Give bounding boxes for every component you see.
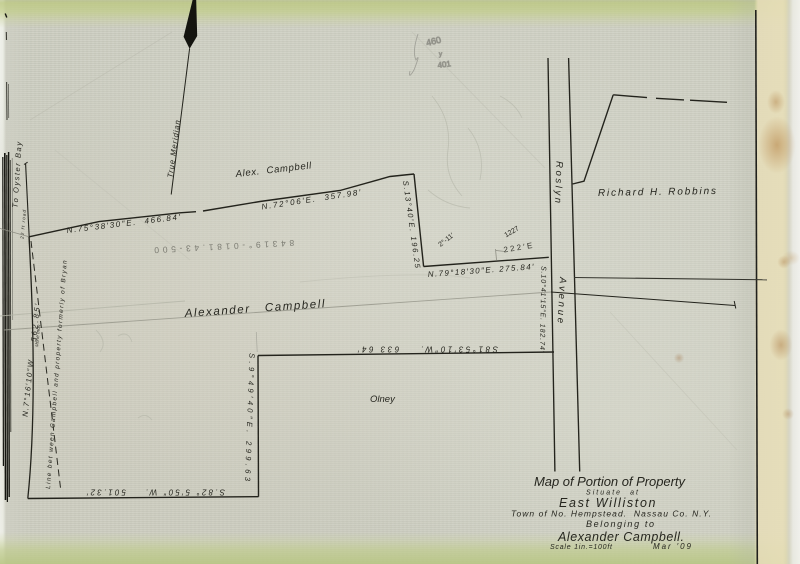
svg-text:2°-11′: 2°-11′	[437, 231, 456, 249]
svg-text:Line bet ween Campbell and pro: Line bet ween Campbell and property form…	[45, 259, 69, 489]
svg-text:Map of Portion of Property: Map of Portion of Property	[534, 474, 687, 489]
svg-text:Olney: Olney	[370, 394, 396, 405]
svg-text:222′E: 222′E	[503, 241, 533, 254]
svg-text:y: y	[439, 52, 442, 58]
svg-text:Roslyn: Roslyn	[552, 161, 564, 203]
svg-text:S.10°41′15″E. 182.74′: S.10°41′15″E. 182.74′	[538, 266, 548, 353]
svg-text:S81°53′10″W. 633 64′: S81°53′10″W. 633 64′	[358, 345, 499, 354]
svg-text:Town of No. Hempstead. Nassau: Town of No. Hempstead. Nassau Co. N.Y.	[511, 509, 711, 519]
svg-text:S.9°49′40″E. 299.63: S.9°49′40″E. 299.63	[243, 353, 256, 482]
svg-text:Alexander Campbell: Alexander Campbell	[183, 298, 325, 320]
svg-text:Belonging to: Belonging to	[586, 519, 654, 529]
svg-text:S.82° 5′50″ W. 501.32′: S.82° 5′50″ W. 501.32′	[87, 488, 226, 497]
svg-text:401: 401	[437, 59, 452, 70]
svg-text:N.72°06′E. 357.98′: N.72°06′E. 357.98′	[261, 188, 362, 212]
svg-text:Mar ′09: Mar ′09	[653, 542, 692, 551]
svg-text:84319°-0181.43-500: 84319°-0181.43-500	[154, 238, 295, 255]
svg-text:Richard H. Robbins: Richard H. Robbins	[598, 186, 716, 199]
svg-text:N.75°38′30″E. 466.84′: N.75°38′30″E. 466.84′	[66, 212, 181, 234]
svg-text:Alex. Campbell: Alex. Campbell	[234, 160, 313, 180]
svg-text:1227: 1227	[504, 225, 521, 239]
svg-text:Scale 1in.=100ft: Scale 1in.=100ft	[550, 544, 613, 551]
svg-text:460: 460	[425, 35, 442, 48]
svg-text:Avenue: Avenue	[555, 276, 568, 324]
svg-text:True Meridian: True Meridian	[166, 120, 182, 179]
